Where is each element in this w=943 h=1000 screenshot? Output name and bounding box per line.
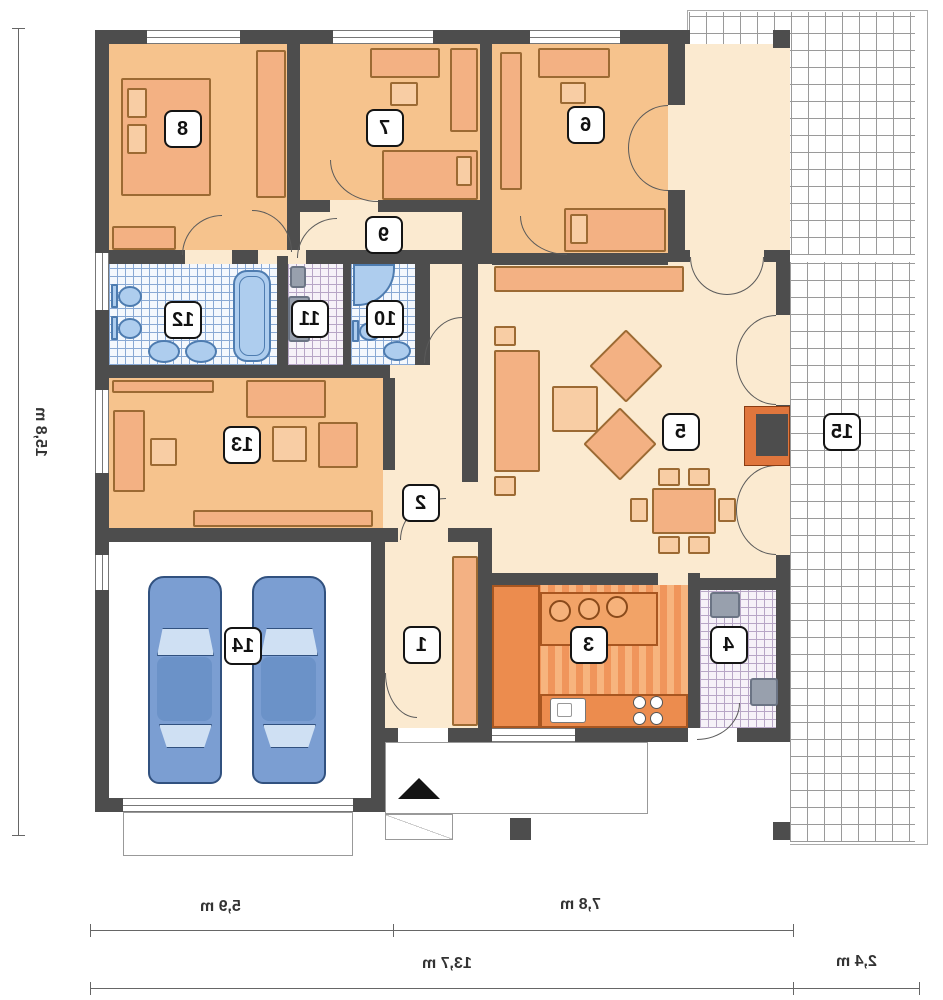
wall xyxy=(95,528,385,542)
wall xyxy=(343,256,351,365)
bidet xyxy=(118,318,142,339)
pillow xyxy=(127,124,147,154)
chair xyxy=(150,438,177,466)
hob-burner xyxy=(578,598,600,620)
cabinet xyxy=(193,510,373,527)
dimension-tick xyxy=(919,982,920,995)
room-badge-3: 3 xyxy=(570,626,608,664)
wall xyxy=(378,200,480,212)
kitchen-window xyxy=(492,728,575,742)
window xyxy=(530,30,620,44)
room-badge-1: 1 xyxy=(403,626,441,664)
hob-burner xyxy=(549,600,571,622)
window xyxy=(147,30,240,44)
wall xyxy=(383,378,395,470)
dimension-label-garage: 5,9 m xyxy=(160,898,280,916)
dresser xyxy=(112,226,176,250)
fireplace-firebox xyxy=(756,414,788,456)
chair xyxy=(688,468,710,486)
wall xyxy=(95,365,390,378)
room-badge-13: 13 xyxy=(223,426,261,464)
car-roof xyxy=(157,657,212,721)
hob-burner xyxy=(606,596,628,618)
window xyxy=(95,555,109,590)
wall xyxy=(371,542,385,812)
chair xyxy=(718,498,736,522)
toilet-tank xyxy=(352,320,359,342)
pillow xyxy=(127,88,147,118)
car xyxy=(148,576,222,784)
wall xyxy=(668,30,685,105)
room-badge-2: 2 xyxy=(402,484,440,522)
dimension-tick xyxy=(90,982,91,995)
sofa xyxy=(246,380,326,418)
wall xyxy=(448,528,492,542)
window xyxy=(95,253,109,310)
room-badge-11: 11 xyxy=(291,300,329,338)
dimension-line xyxy=(90,930,793,931)
chair xyxy=(560,82,586,104)
side-table xyxy=(494,326,516,346)
wardrobe xyxy=(452,556,478,726)
dimension-tick xyxy=(793,982,794,995)
dimension-tick xyxy=(12,835,25,836)
chair xyxy=(630,498,648,522)
table xyxy=(272,426,307,462)
chair xyxy=(658,468,680,486)
sofa xyxy=(494,350,540,472)
car xyxy=(252,576,326,784)
wall xyxy=(478,542,492,728)
wall xyxy=(492,253,668,265)
utility-unit xyxy=(750,678,778,706)
room-badge-14: 14 xyxy=(224,627,262,665)
car-rear-window xyxy=(159,724,212,748)
terrace-outline xyxy=(927,10,928,845)
desk xyxy=(538,48,610,78)
wall xyxy=(109,250,185,264)
chair xyxy=(658,536,680,554)
kitchen-counter xyxy=(492,585,540,728)
entrance-step xyxy=(385,814,453,840)
wardrobe xyxy=(500,52,522,190)
dimension-label-living: 7,8 m xyxy=(520,896,640,914)
window xyxy=(333,30,433,44)
pillow xyxy=(456,156,472,186)
chair xyxy=(688,536,710,554)
dimension-tick xyxy=(12,28,25,29)
car-roof xyxy=(261,657,316,721)
utility-unit xyxy=(290,266,306,288)
armchair xyxy=(318,422,358,468)
desk xyxy=(113,410,145,492)
wall xyxy=(383,728,398,742)
wall xyxy=(277,256,288,365)
stove-burner xyxy=(650,696,663,709)
wall xyxy=(776,250,790,315)
entrance-arrow-icon xyxy=(398,778,440,799)
dimension-tick xyxy=(393,924,394,937)
sink xyxy=(185,340,217,363)
sink-basin xyxy=(557,703,572,717)
wall xyxy=(462,212,478,482)
wall xyxy=(700,578,776,590)
terrace-outline xyxy=(790,844,928,845)
wall xyxy=(287,30,300,250)
wall xyxy=(668,250,690,262)
wall xyxy=(385,528,398,542)
toilet-tank xyxy=(111,284,118,308)
garage-apron xyxy=(123,812,353,856)
room-badge-7: 7 xyxy=(366,109,404,147)
entrance-door-opening xyxy=(398,728,448,742)
wardrobe xyxy=(256,50,286,198)
coffee-table xyxy=(552,386,598,432)
dimension-label-terrace: 2,4 m xyxy=(796,953,916,971)
car-windshield xyxy=(261,628,318,656)
room-badge-4: 4 xyxy=(710,626,748,664)
stove-burner xyxy=(633,712,646,725)
chair xyxy=(390,82,418,106)
wall xyxy=(95,798,123,812)
room-badge-8: 8 xyxy=(164,110,202,148)
pillow xyxy=(570,214,588,244)
room-badge-15: 15 xyxy=(823,413,861,451)
floor-plan: 1 2 3 4 5 6 7 8 9 10 11 12 13 14 15 15,8… xyxy=(0,0,943,1000)
sink xyxy=(383,341,411,361)
sink xyxy=(148,340,180,363)
dimension-tick xyxy=(793,924,794,937)
window xyxy=(95,390,109,473)
terrace-paving xyxy=(790,262,915,842)
wall xyxy=(232,250,258,264)
sideboard xyxy=(494,266,684,292)
room-badge-12: 12 xyxy=(164,301,202,339)
wall xyxy=(478,212,492,264)
shelf xyxy=(112,380,214,393)
wall xyxy=(776,555,790,742)
room-badge-6: 6 xyxy=(567,106,605,144)
dimension-tick xyxy=(90,924,91,937)
wall xyxy=(478,573,658,585)
bathtub-inner xyxy=(239,276,265,356)
stove-burner xyxy=(650,712,663,725)
stove-burner xyxy=(633,696,646,709)
toilet xyxy=(118,286,142,307)
garage-door-opening xyxy=(123,798,353,812)
wall xyxy=(575,728,688,742)
terrace-post xyxy=(773,822,790,840)
terrace-outline xyxy=(687,10,927,11)
car-windshield xyxy=(157,628,214,656)
wall xyxy=(448,728,492,742)
room-badge-10: 10 xyxy=(366,300,404,338)
bidet-tank xyxy=(111,316,118,340)
dimension-label-height: 15,8 m xyxy=(30,395,50,469)
dimension-line xyxy=(90,988,920,989)
dimension-label-total: 13,7 m xyxy=(387,955,507,973)
room-14-garage-floor xyxy=(107,542,371,798)
room-badge-5: 5 xyxy=(662,413,700,451)
washing-machine xyxy=(710,592,740,618)
desk xyxy=(370,48,440,78)
car-rear-window xyxy=(263,724,316,748)
terrace-post xyxy=(773,30,790,48)
wall xyxy=(480,30,492,212)
dimension-line-vertical xyxy=(18,28,19,836)
wall xyxy=(300,200,330,212)
side-table xyxy=(494,476,516,496)
porch-post xyxy=(510,818,531,840)
room-badge-9: 9 xyxy=(365,216,403,254)
wall xyxy=(737,728,790,742)
wardrobe xyxy=(450,48,478,132)
dining-table xyxy=(652,488,716,534)
